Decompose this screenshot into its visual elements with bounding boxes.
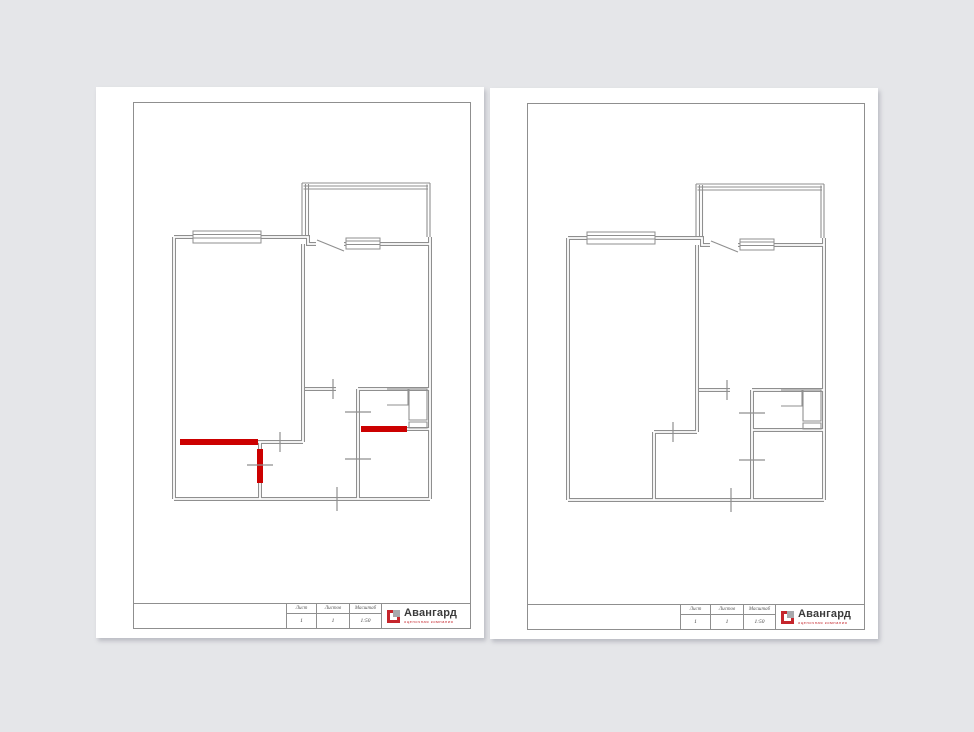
company-logo: Авангард оценочная компания bbox=[381, 604, 470, 628]
avangard-logo-icon bbox=[781, 611, 794, 624]
logo-name: Авангард bbox=[404, 608, 457, 619]
drawing-sheet-marked: Лист 1 Листов 1 Масштаб 1:50 Авангард оц… bbox=[96, 87, 484, 638]
title-col-scale: Масштаб 1:50 bbox=[743, 605, 775, 629]
scale-value: 1:50 bbox=[744, 615, 775, 629]
desktop-background: { "colors": { "background": "#e5e6e9", "… bbox=[0, 0, 974, 732]
scale-value: 1:50 bbox=[350, 614, 381, 628]
sheets-value: 1 bbox=[317, 614, 349, 628]
title-block: Лист 1 Листов 1 Масштаб 1:50 Авангард оц… bbox=[528, 604, 864, 629]
scale-label: Масштаб bbox=[744, 605, 775, 615]
title-col-sheet: Лист 1 bbox=[286, 604, 316, 628]
title-block: Лист 1 Листов 1 Масштаб 1:50 Авангард оц… bbox=[134, 603, 470, 628]
title-col-sheets: Листов 1 bbox=[316, 604, 349, 628]
sheets-label: Листов bbox=[317, 604, 349, 614]
sheets-value: 1 bbox=[711, 615, 743, 629]
sheet-label: Лист bbox=[287, 604, 316, 614]
sheets-label: Листов bbox=[711, 605, 743, 615]
sheet-value: 1 bbox=[681, 615, 710, 629]
avangard-logo-icon bbox=[387, 610, 400, 623]
sheet-value: 1 bbox=[287, 614, 316, 628]
logo-subtitle: оценочная компания bbox=[798, 621, 851, 625]
title-col-sheet: Лист 1 bbox=[680, 605, 710, 629]
company-logo: Авангард оценочная компания bbox=[775, 605, 864, 629]
logo-name: Авангард bbox=[798, 609, 851, 620]
drawing-frame: Лист 1 Листов 1 Масштаб 1:50 Авангард оц… bbox=[527, 103, 865, 630]
title-col-sheets: Листов 1 bbox=[710, 605, 743, 629]
scale-label: Масштаб bbox=[350, 604, 381, 614]
drawing-frame: Лист 1 Листов 1 Масштаб 1:50 Авангард оц… bbox=[133, 102, 471, 629]
drawing-sheet-clean: Лист 1 Листов 1 Масштаб 1:50 Авангард оц… bbox=[490, 88, 878, 639]
sheet-label: Лист bbox=[681, 605, 710, 615]
title-col-scale: Масштаб 1:50 bbox=[349, 604, 381, 628]
logo-subtitle: оценочная компания bbox=[404, 620, 457, 624]
